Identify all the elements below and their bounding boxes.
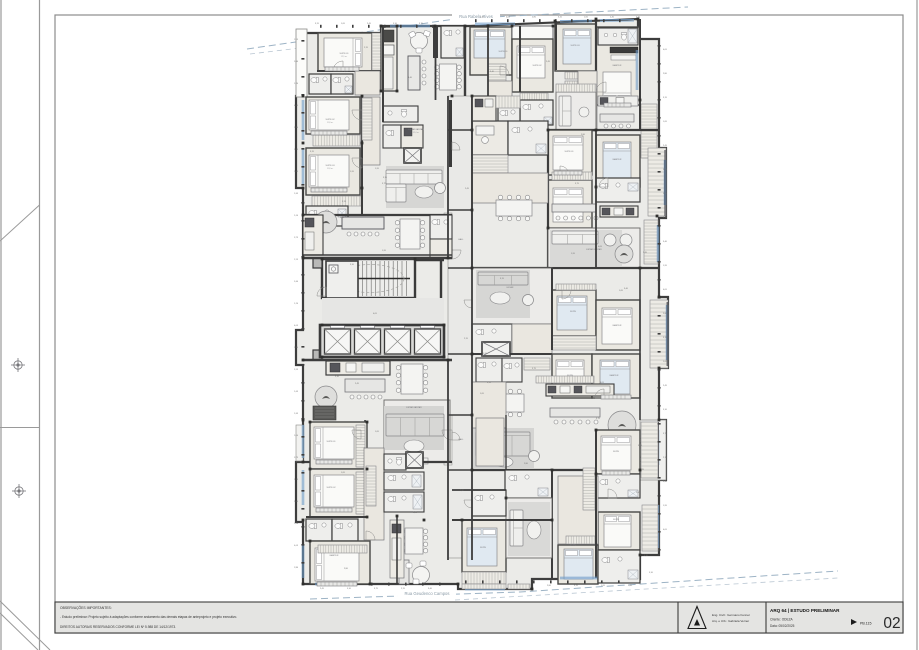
svg-text:SUÍTE: SUÍTE [480, 546, 487, 549]
svg-text:32,4 m²: 32,4 m² [413, 131, 420, 134]
svg-text:ARQ 64 | ESTUDO PRELIMINAR: ARQ 64 | ESTUDO PRELIMINAR [770, 608, 840, 613]
svg-text:ESTAR: ESTAR [507, 286, 514, 289]
svg-text:MASTER: MASTER [610, 374, 619, 377]
svg-text:OBSERVAÇÕES IMPORTANTES:: OBSERVAÇÕES IMPORTANTES: [60, 605, 112, 610]
svg-text:Rua Rabelo Rives: Rua Rabelo Rives [459, 14, 493, 19]
svg-text:SUÍTE: SUÍTE [613, 450, 620, 453]
svg-text:SUÍTE: SUÍTE [570, 544, 577, 547]
svg-text:ESTAR/JANTAR: ESTAR/JANTAR [408, 128, 424, 131]
svg-text:12,5 m²: 12,5 m² [341, 55, 348, 58]
svg-text:11,8 m²: 11,8 m² [327, 121, 334, 124]
svg-text:SUÍTE 02: SUÍTE 02 [532, 64, 542, 67]
svg-text:HALL: HALL [458, 238, 464, 241]
svg-text:SUÍTE 03: SUÍTE 03 [325, 164, 335, 167]
svg-text:MASTER: MASTER [613, 64, 622, 67]
svg-text:02: 02 [883, 615, 900, 632]
svg-text:Rua Geudenco Campos: Rua Geudenco Campos [405, 591, 450, 596]
svg-text:SUÍTE 02: SUÍTE 02 [326, 486, 336, 489]
svg-text:SUÍTE 03: SUÍTE 03 [570, 44, 580, 47]
svg-text:HALL: HALL [458, 438, 464, 441]
svg-text:Cliente: ODEZA: Cliente: ODEZA [770, 618, 794, 622]
svg-text:SUÍTE 01: SUÍTE 01 [498, 50, 508, 53]
svg-text:MASTER: MASTER [613, 324, 622, 327]
svg-text:PB.115: PB.115 [860, 622, 872, 626]
svg-text:SUÍTE 02: SUÍTE 02 [325, 118, 335, 121]
svg-text:SUÍTE: SUÍTE [613, 518, 620, 521]
svg-text:ESTAR/JANTAR: ESTAR/JANTAR [586, 248, 602, 251]
svg-text:Data: 05/02/2025: Data: 05/02/2025 [770, 624, 795, 628]
svg-text:SUÍTE: SUÍTE [570, 310, 577, 313]
svg-text:ESTAR/JANTAR: ESTAR/JANTAR [406, 406, 422, 409]
svg-text:SUÍTE 01: SUÍTE 01 [339, 52, 349, 55]
svg-text:SUÍTE 01: SUÍTE 01 [326, 440, 336, 443]
svg-text:MASTER: MASTER [613, 158, 622, 161]
svg-text:11,8 m²: 11,8 m² [327, 167, 334, 170]
svg-text:SUÍTE 01: SUÍTE 01 [564, 150, 574, 153]
svg-text:Eng. Civil.: Germano Fenner: Eng. Civil.: Germano Fenner [712, 613, 750, 617]
svg-text:- Estudo preliminar: Projeto s: - Estudo preliminar: Projeto sujeito à a… [60, 615, 237, 619]
svg-text:MASTER: MASTER [330, 554, 339, 557]
svg-text:Arq. e Urb.: Gabriela Verner: Arq. e Urb.: Gabriela Verner [712, 619, 749, 623]
svg-text:DIREITOS AUTORAIS RESERVADOS C: DIREITOS AUTORAIS RESERVADOS CONFORME LE… [60, 625, 176, 629]
